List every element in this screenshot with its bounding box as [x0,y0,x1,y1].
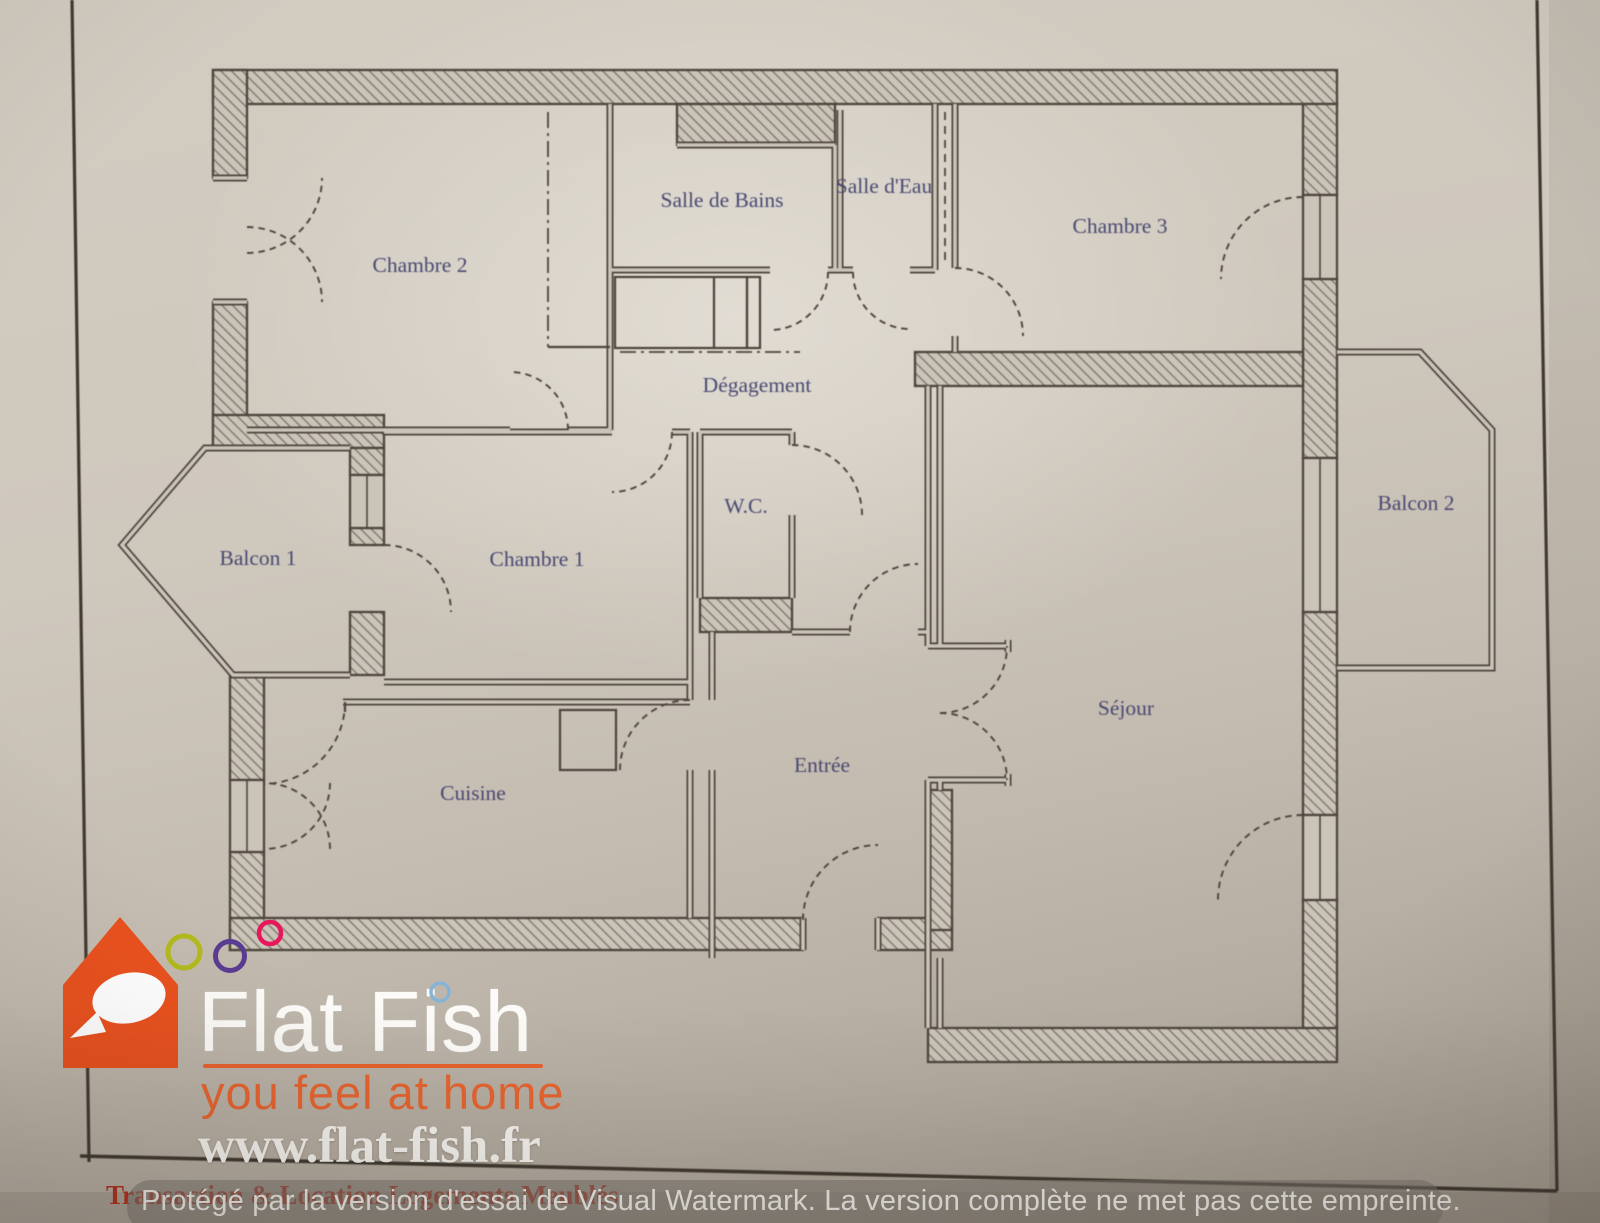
logo-title: Flat Fish [198,980,533,1065]
logo-tagline: you feel at home [201,1069,565,1116]
room-label-cuisine: Cuisine [440,781,506,805]
room-label-chambre-3: Chambre 3 [1073,214,1168,238]
room-label-chambre-2: Chambre 2 [373,253,468,277]
room-label-balcon-2: Balcon 2 [1377,491,1454,515]
room-label-salle-d-eau: Salle d'Eau [836,174,933,198]
window-symbols [230,195,1337,900]
room-label-chambre-1: Chambre 1 [490,547,585,571]
logo-website-url: www.flat-fish.fr [198,1121,541,1172]
window-glass-lines [247,195,1320,900]
door-swing-arcs [247,178,1303,920]
photo-of-floor-plan: Chambre 2 Salle de Bains Salle d'Eau Cha… [0,0,1600,1223]
room-label-balcon-1: Balcon 1 [219,546,296,570]
room-label-wc: W.C. [724,494,767,518]
room-label-sejour: Séjour [1098,696,1154,720]
watermark-text: Protégé par la version d'essai de Visual… [141,1186,1461,1218]
photo-edge-shade-right [1549,0,1600,1223]
room-label-degagement: Dégagement [703,373,812,397]
partition-walls [122,104,1492,1028]
outer-walls [213,70,1337,1062]
room-label-entree: Entrée [794,753,850,777]
room-label-salle-de-bains: Salle de Bains [660,188,783,212]
